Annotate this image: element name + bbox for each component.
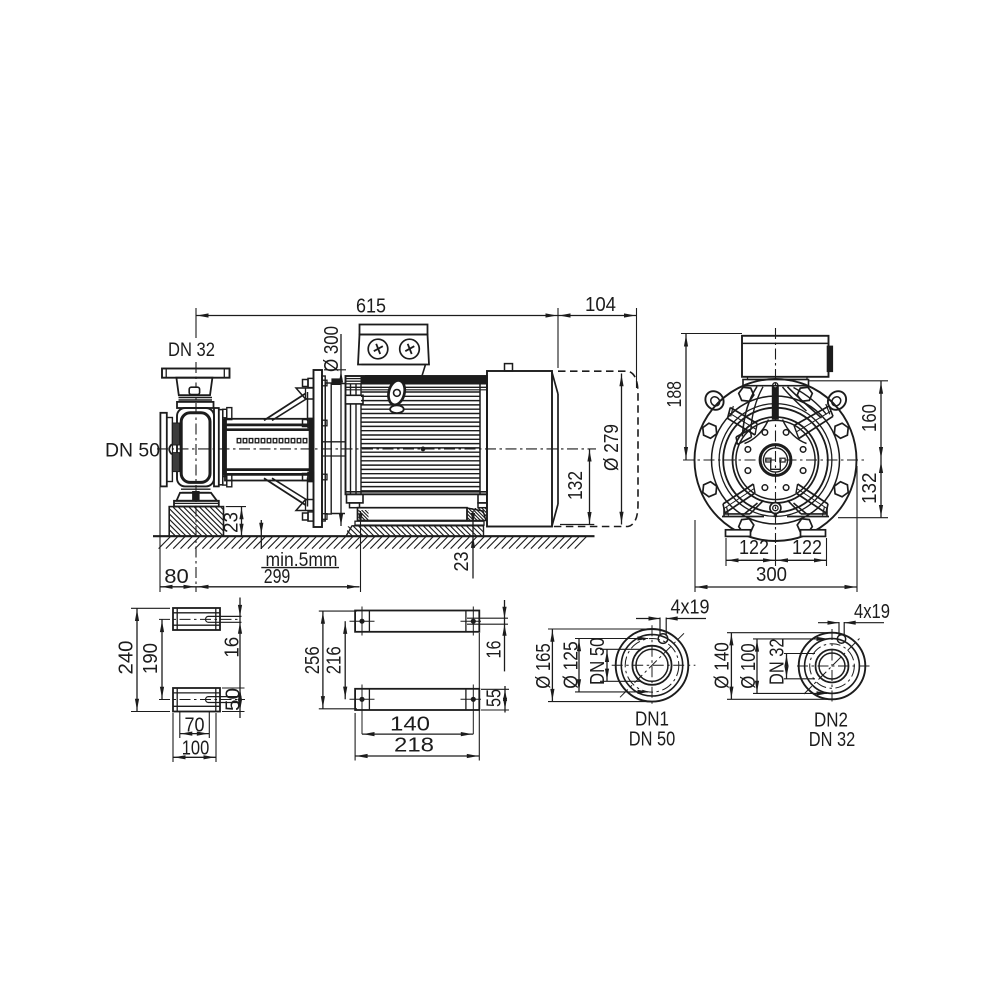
svg-text:16: 16 xyxy=(484,641,506,659)
svg-text:240: 240 xyxy=(116,641,138,675)
svg-text:DN 50: DN 50 xyxy=(629,729,676,751)
svg-text:Ø 125: Ø 125 xyxy=(561,641,583,689)
svg-text:DN 32: DN 32 xyxy=(168,339,215,361)
svg-text:Ø 300: Ø 300 xyxy=(321,326,343,372)
svg-text:16: 16 xyxy=(222,637,244,658)
svg-text:615: 615 xyxy=(356,296,386,318)
svg-text:4x19: 4x19 xyxy=(671,597,710,619)
svg-text:Ø 100: Ø 100 xyxy=(738,643,760,689)
svg-text:4x19: 4x19 xyxy=(854,601,890,623)
svg-text:299: 299 xyxy=(264,566,291,588)
svg-text:DN 32: DN 32 xyxy=(809,729,856,751)
svg-text:23: 23 xyxy=(451,552,473,572)
svg-text:70: 70 xyxy=(185,715,205,737)
svg-text:300: 300 xyxy=(756,564,787,586)
svg-text:23: 23 xyxy=(221,512,243,533)
svg-text:80: 80 xyxy=(164,566,189,588)
svg-text:160: 160 xyxy=(859,404,881,432)
svg-text:100: 100 xyxy=(182,738,210,760)
svg-text:216: 216 xyxy=(324,646,346,674)
svg-text:256: 256 xyxy=(302,646,324,674)
svg-text:140: 140 xyxy=(390,714,430,736)
svg-text:Ø 140: Ø 140 xyxy=(712,642,734,689)
svg-text:122: 122 xyxy=(792,537,822,559)
svg-text:218: 218 xyxy=(394,735,434,757)
svg-text:188: 188 xyxy=(664,381,686,408)
svg-text:Ø 279: Ø 279 xyxy=(601,424,623,471)
svg-text:122: 122 xyxy=(739,537,769,559)
svg-text:50: 50 xyxy=(222,688,244,711)
svg-text:Ø 165: Ø 165 xyxy=(533,643,555,689)
svg-text:55: 55 xyxy=(484,689,506,707)
svg-text:132: 132 xyxy=(859,473,881,505)
svg-text:DN 32: DN 32 xyxy=(767,639,789,686)
svg-text:DN 50: DN 50 xyxy=(587,638,609,686)
svg-text:132: 132 xyxy=(565,471,587,500)
svg-text:DN1: DN1 xyxy=(635,709,669,731)
svg-text:DN 50: DN 50 xyxy=(105,440,160,462)
svg-text:104: 104 xyxy=(585,294,616,316)
svg-text:190: 190 xyxy=(140,643,162,674)
